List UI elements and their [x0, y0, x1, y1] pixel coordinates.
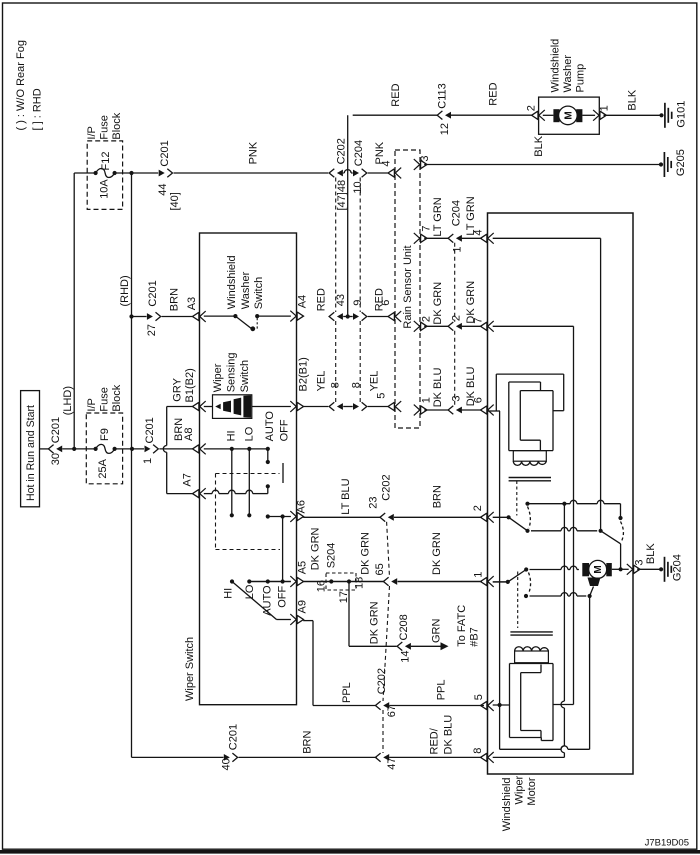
svg-text:Washer: Washer [562, 55, 574, 93]
svg-text:Block: Block [111, 384, 123, 411]
svg-text:B2(B1): B2(B1) [298, 357, 310, 391]
svg-text:C201: C201 [144, 417, 156, 443]
svg-text:Pump: Pump [574, 64, 586, 93]
svg-text:PPL: PPL [436, 680, 448, 701]
svg-text:PNK: PNK [248, 141, 260, 164]
svg-text:( ) : W/O Rear Fog: ( ) : W/O Rear Fog [15, 40, 27, 130]
svg-text:5: 5 [473, 694, 485, 700]
svg-text:HI: HI [223, 588, 235, 599]
svg-text:AUTO: AUTO [264, 411, 276, 442]
svg-text:#B7: #B7 [469, 627, 481, 647]
svg-text:AUTO: AUTO [262, 585, 274, 616]
svg-text:A3: A3 [186, 297, 198, 310]
svg-text:30: 30 [50, 453, 62, 465]
svg-text:Block: Block [111, 112, 123, 139]
svg-text:LO: LO [244, 584, 256, 599]
svg-text:1: 1 [473, 572, 485, 578]
svg-text:DK BLU: DK BLU [443, 715, 455, 755]
svg-text:BLK: BLK [627, 89, 639, 110]
svg-text:A7: A7 [181, 473, 193, 486]
svg-text:44: 44 [157, 184, 169, 196]
svg-text:8: 8 [472, 748, 484, 754]
svg-text:Switch: Switch [253, 277, 265, 309]
svg-text:Fuse: Fuse [99, 387, 111, 411]
svg-text:23: 23 [367, 496, 379, 508]
svg-text:C201: C201 [147, 280, 159, 306]
svg-text:40: 40 [221, 758, 233, 770]
svg-text:2: 2 [472, 505, 484, 511]
svg-text:65: 65 [374, 563, 386, 575]
svg-text:YEL: YEL [369, 371, 381, 392]
svg-text:5: 5 [375, 393, 387, 399]
svg-text:1: 1 [598, 105, 610, 111]
svg-text:Hot in Run and Start: Hot in Run and Start [25, 405, 37, 501]
svg-text:RED: RED [390, 83, 402, 106]
svg-text:18: 18 [354, 577, 366, 589]
svg-text:10: 10 [352, 181, 364, 193]
svg-text:LT BLU: LT BLU [340, 478, 352, 514]
svg-text:RED: RED [316, 288, 328, 311]
svg-text:S204: S204 [325, 543, 337, 569]
svg-text:Sensing: Sensing [226, 353, 238, 393]
svg-text:6: 6 [380, 300, 392, 306]
svg-text:A5: A5 [297, 561, 309, 574]
svg-text:F12: F12 [100, 152, 112, 171]
svg-text:DK GRN: DK GRN [309, 527, 321, 570]
svg-text:Motor: Motor [526, 777, 538, 805]
svg-text:BLK: BLK [533, 135, 545, 156]
svg-text:(RHD): (RHD) [119, 275, 131, 306]
svg-text:47: 47 [386, 757, 398, 769]
svg-text:Wiper: Wiper [212, 363, 224, 392]
svg-text:DK BLU: DK BLU [432, 368, 444, 408]
svg-text:C201: C201 [50, 417, 62, 443]
svg-text:2: 2 [525, 105, 537, 111]
svg-text:G205: G205 [675, 149, 687, 176]
svg-text:Windshield: Windshield [226, 255, 238, 309]
svg-text:OFF: OFF [277, 586, 289, 608]
svg-text:G204: G204 [671, 554, 683, 581]
svg-text:B1(B2): B1(B2) [184, 368, 196, 402]
svg-text:J7B19D05: J7B19D05 [645, 837, 689, 848]
svg-text:G101: G101 [675, 101, 687, 128]
svg-text:1: 1 [142, 458, 154, 464]
svg-text:6: 6 [472, 397, 484, 403]
svg-text:OFF: OFF [278, 419, 290, 441]
svg-text:BRN: BRN [302, 731, 314, 754]
svg-text:BRN: BRN [431, 485, 443, 508]
svg-text:3: 3 [419, 155, 431, 161]
svg-text:Windshield: Windshield [501, 777, 513, 831]
svg-text:9: 9 [352, 300, 364, 306]
svg-text:Rain Sensor Unit: Rain Sensor Unit [402, 245, 414, 328]
svg-text:To FATC: To FATC [456, 605, 468, 647]
svg-text:C208: C208 [398, 614, 410, 640]
svg-text:3: 3 [633, 559, 645, 565]
svg-text:PPL: PPL [341, 682, 353, 703]
svg-text:C202: C202 [376, 668, 388, 694]
svg-text:14: 14 [400, 650, 412, 662]
svg-text:43: 43 [335, 294, 347, 306]
svg-text:M: M [563, 111, 574, 119]
svg-text:[40]: [40] [169, 192, 181, 210]
svg-text:Washer: Washer [240, 271, 252, 309]
svg-text:C204: C204 [450, 200, 462, 226]
svg-text:RED/: RED/ [429, 727, 441, 754]
svg-text:BLK: BLK [645, 543, 657, 564]
svg-text:GRY: GRY [171, 377, 183, 401]
svg-text:A4: A4 [296, 295, 308, 308]
svg-text:C202: C202 [380, 474, 392, 500]
svg-text:Fuse: Fuse [99, 115, 111, 139]
svg-text:4: 4 [472, 229, 484, 235]
svg-text:67: 67 [386, 705, 398, 717]
svg-text:DK GRN: DK GRN [360, 532, 372, 575]
svg-text:27: 27 [146, 324, 158, 336]
svg-text:10A: 10A [99, 179, 111, 199]
svg-text:DK GRN: DK GRN [431, 532, 443, 575]
svg-text:C201: C201 [228, 724, 240, 750]
svg-text:1: 1 [451, 246, 463, 252]
svg-text:I/P: I/P [86, 398, 98, 411]
svg-text:BRN: BRN [169, 288, 181, 311]
svg-text:DK GRN: DK GRN [432, 282, 444, 325]
svg-text:LT GRN: LT GRN [432, 197, 444, 236]
svg-text:1: 1 [420, 397, 432, 403]
svg-text:DK GRN: DK GRN [368, 601, 380, 644]
svg-text:7: 7 [472, 317, 484, 323]
svg-text:Windshield: Windshield [549, 39, 561, 93]
svg-text:C202: C202 [336, 138, 348, 164]
svg-text:Wiper: Wiper [514, 775, 526, 804]
svg-text:2: 2 [420, 316, 432, 322]
svg-text:RED: RED [487, 82, 499, 105]
svg-text:F9: F9 [99, 428, 111, 441]
svg-text:3: 3 [450, 395, 462, 401]
svg-text:M: M [593, 565, 604, 573]
svg-text:25A: 25A [97, 458, 109, 478]
svg-text:2: 2 [450, 315, 462, 321]
svg-text:Wiper Switch: Wiper Switch [184, 637, 196, 701]
svg-text:I/P: I/P [86, 126, 98, 139]
svg-text:C204: C204 [353, 140, 365, 166]
svg-text:4: 4 [381, 160, 393, 166]
svg-text:DK GRN: DK GRN [465, 281, 477, 324]
svg-text:A6: A6 [296, 500, 308, 513]
svg-text:16: 16 [315, 580, 327, 592]
svg-text:7: 7 [420, 225, 432, 231]
svg-text:A9: A9 [296, 600, 308, 613]
svg-text:Switch: Switch [239, 360, 251, 392]
svg-text:12: 12 [439, 123, 451, 135]
svg-text:C113: C113 [436, 83, 448, 108]
svg-text:[ ] : RHD: [ ] : RHD [32, 88, 44, 130]
svg-text:LO: LO [243, 426, 255, 441]
svg-text:17: 17 [338, 591, 350, 603]
svg-text:(LHD): (LHD) [62, 386, 74, 415]
svg-text:YEL: YEL [316, 371, 328, 392]
svg-text:HI: HI [225, 430, 237, 441]
svg-text:GRN: GRN [431, 619, 443, 644]
svg-text:[47]48: [47]48 [336, 180, 348, 211]
svg-text:A8: A8 [183, 428, 195, 441]
svg-text:C201: C201 [159, 140, 171, 166]
